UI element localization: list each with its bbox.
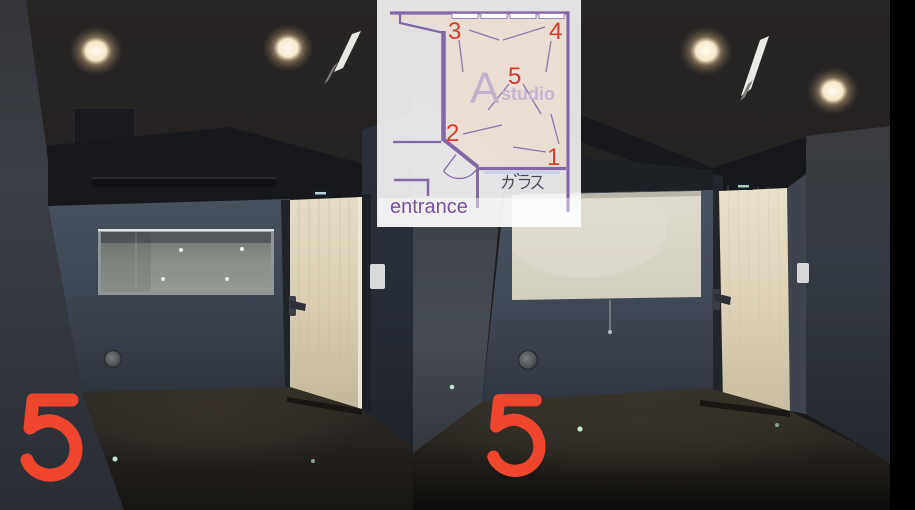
svg-text:5: 5 [508, 63, 521, 90]
svg-text:2: 2 [446, 120, 459, 147]
svg-text:1: 1 [547, 144, 560, 171]
svg-text:3: 3 [448, 18, 461, 45]
svg-text:A: A [470, 64, 500, 113]
svg-text:entrance: entrance [390, 196, 468, 218]
svg-text:4: 4 [549, 18, 562, 45]
